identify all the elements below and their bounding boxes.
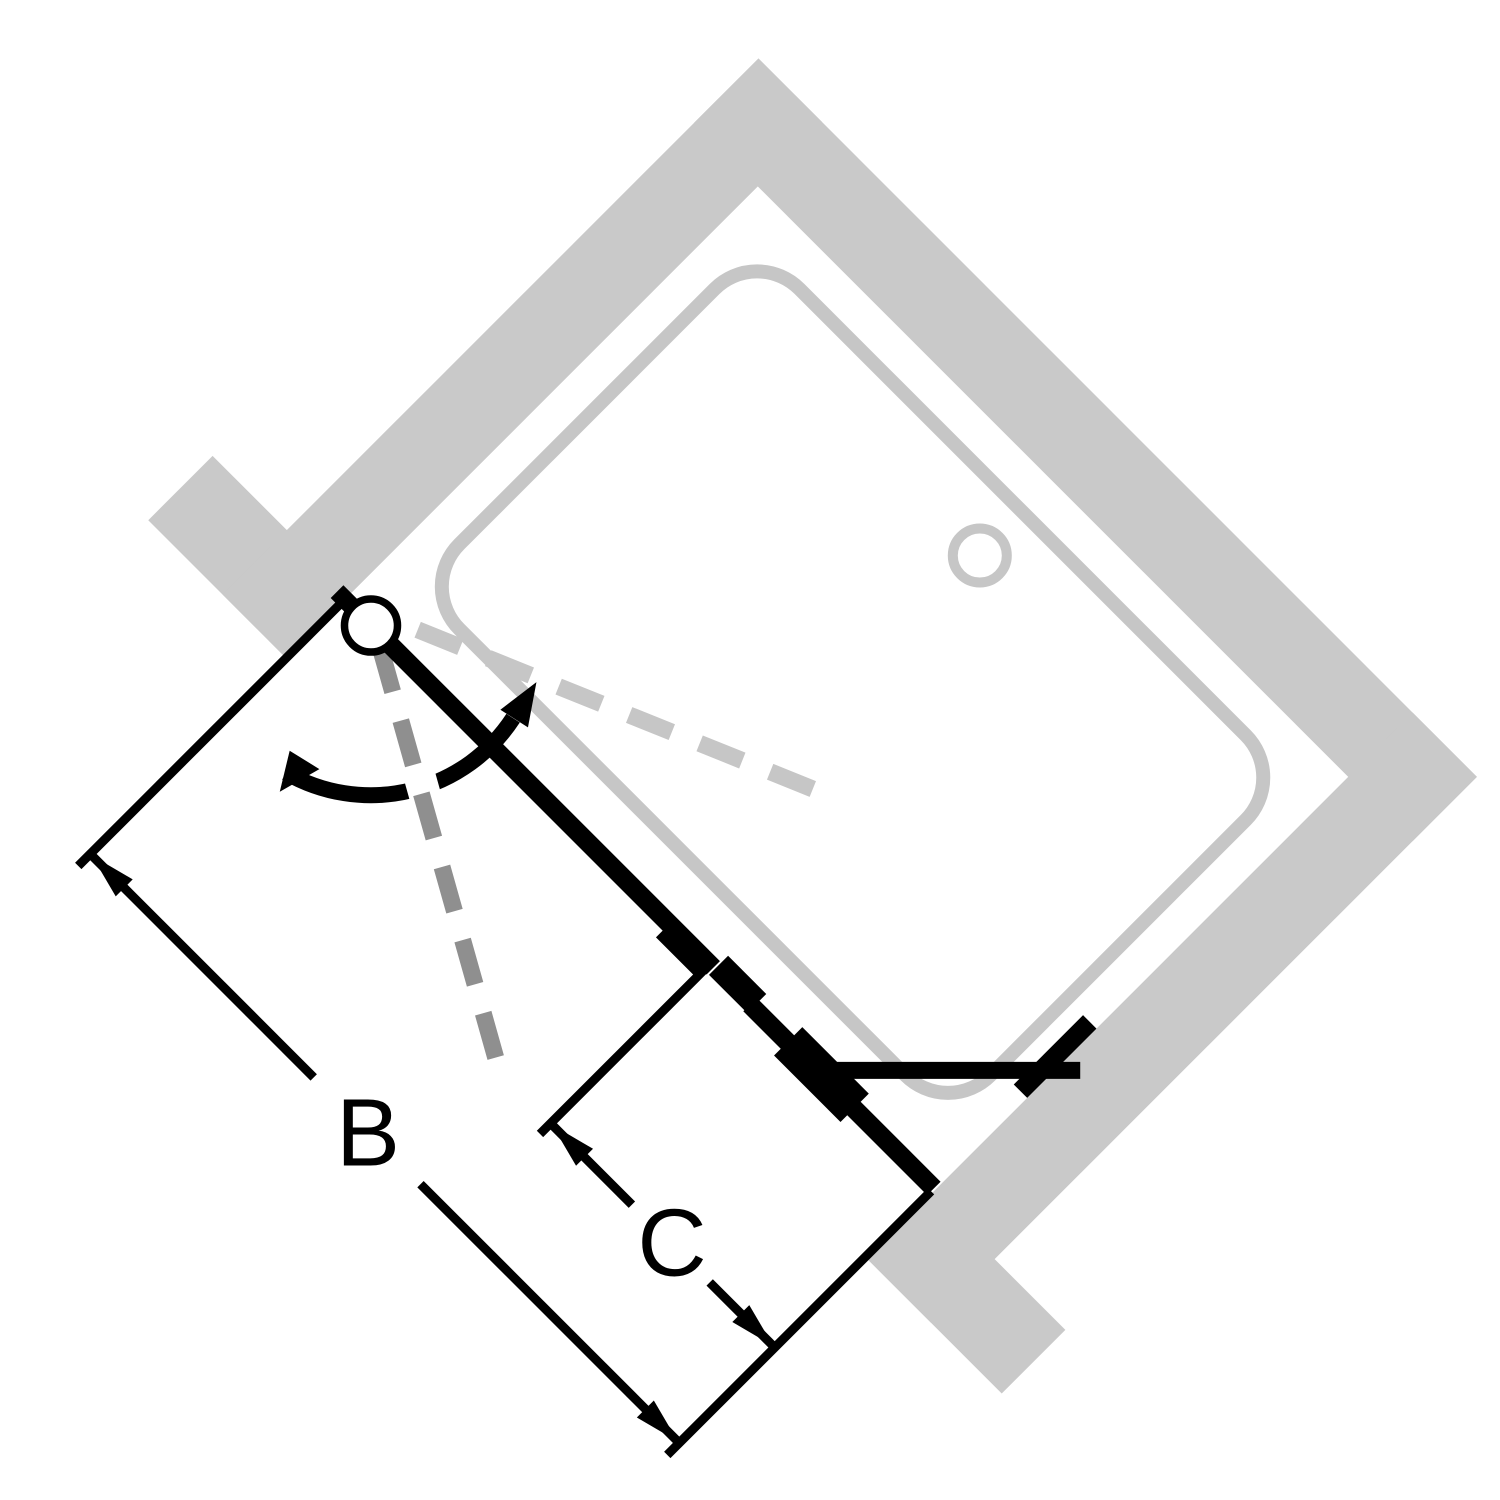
door-open-inward-dashed-line (418, 508, 825, 915)
extension-line-door-joint (540, 964, 710, 1134)
dim-c-label: C (637, 1190, 706, 1297)
shower-enclosure-diagram: B C (0, 0, 1500, 1500)
dimension-c (540, 964, 934, 1358)
wall-right (694, 58, 1477, 841)
dim-b-label: B (336, 1080, 400, 1187)
diagram-canvas: B C (0, 0, 1500, 1500)
extension-line-bottom (667, 1191, 931, 1455)
extension-line-top (78, 594, 350, 866)
drain-icon (942, 517, 1018, 593)
rotated-plan (0, 0, 1500, 1500)
